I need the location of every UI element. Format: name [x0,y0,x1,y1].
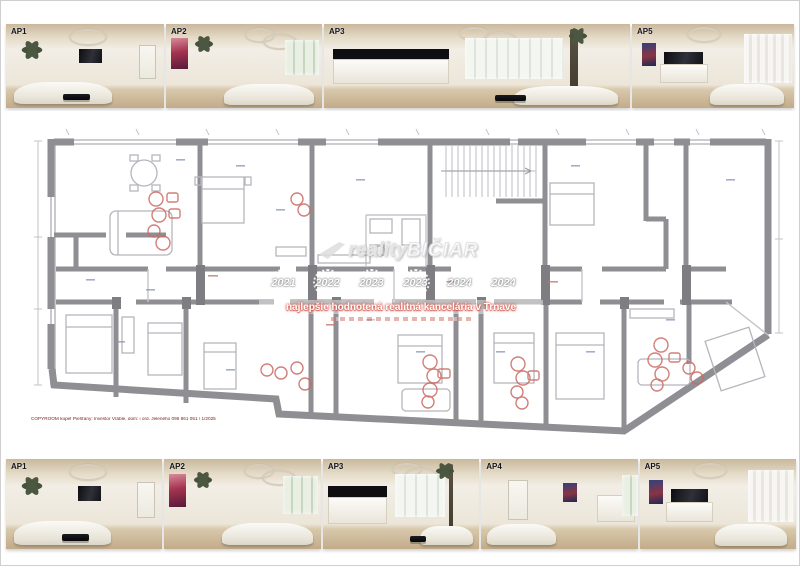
award-year: 2021 [271,277,295,289]
tv-decor [671,489,709,503]
sofa-decor [420,526,473,546]
art-decor [649,480,663,504]
photo-label: AP5 [637,27,653,36]
window-decor [465,38,563,78]
photo-label: AP2 [169,462,185,471]
award-year: 2023 [403,277,427,289]
ring-decor [69,464,107,481]
bottom-photo-strip: AP1AP2AP3AP4AP5 [6,459,796,549]
art-decor [171,38,188,68]
sofa-decor [710,84,785,105]
banner-text: najlepšie hodnotená realitná kancelária … [236,302,566,313]
apartment-photo-AP4: AP4 [481,459,637,549]
art-decor [563,483,577,502]
art-decor [642,43,657,66]
award-badges-row: 202120222023202320242024 [263,268,524,297]
sofa-decor [487,524,556,546]
window-decor [283,476,317,514]
sofa-decor [14,82,112,104]
tv-decor [664,52,703,65]
award-badge-2022: 2022 [307,268,348,297]
award-badge-2023: 2023 [395,268,436,297]
sofa-decor [715,524,787,547]
logo-text-prefix: reality [348,239,407,262]
sofa-decor [14,521,111,544]
door-decor [137,482,154,518]
strip-black-decor [328,486,387,497]
agency-logo: reality BIČIAR [319,239,478,262]
window-decor [744,34,793,83]
dimension-labels [86,159,735,371]
sofa-decor [224,84,314,105]
award-year: 2024 [491,277,515,289]
table-decor [62,534,89,541]
photo-label: AP1 [11,462,27,471]
photo-label: AP3 [328,462,344,471]
door-decor [508,480,528,521]
palm-decor [563,25,593,47]
apartment-photo-AP1: AP1 [6,459,162,549]
window-decor [748,470,795,522]
sofa-decor [222,523,313,546]
stairwell [441,145,536,197]
apartment-photo-AP2: AP2 [166,24,322,108]
art-decor [78,486,101,501]
window-decor [285,40,319,75]
table-decor [63,94,90,101]
ring-decor [693,463,727,479]
top-photo-strip: AP1AP2AP3AP5 [6,24,796,108]
photo-label: AP4 [486,462,502,471]
ring-decor [687,27,721,43]
palm-decor [189,32,219,56]
photo-label: AP5 [645,462,661,471]
apartment-photo-AP1: AP1 [6,24,164,108]
award-year: 2023 [359,277,383,289]
table-decor [410,536,426,542]
apartment-photo-AP5: AP5 [640,459,796,549]
plan-footer-note: COPYROOM kúpeľ Piešťany: Investor Vráble… [31,417,216,422]
palm-decor [15,473,49,499]
door-decor [139,45,156,79]
photo-label: AP3 [329,27,345,36]
ring-decor [69,29,107,46]
apartment-photo-AP5: AP5 [632,24,794,108]
palm-decor [188,468,218,492]
window-lines [51,139,770,385]
cab-decor [333,59,449,84]
apartment-photo-AP3: AP3 [323,459,479,549]
award-badge-2021: 2021 [263,268,304,297]
presentation-board: AP1AP2AP3AP5 [0,0,800,566]
window-decor [622,475,638,516]
logo-text-suffix: BIČIAR [407,240,478,262]
palm-decor [430,460,460,482]
floor-plan: reality BIČIAR 202120222023202320242024 … [1,111,800,456]
strip-black-decor [333,49,449,59]
apartment-photo-AP3: AP3 [324,24,630,108]
art-decor [169,474,186,506]
art-decor [79,49,103,63]
logo-swoosh-icon [319,242,345,259]
award-badge-2024: 2024 [439,268,480,297]
award-year: 2024 [447,277,471,289]
award-badge-2023: 2023 [351,268,392,297]
award-year: 2022 [315,277,339,289]
apartment-photo-AP2: AP2 [164,459,320,549]
cab-decor [660,64,709,82]
photo-label: AP2 [171,27,187,36]
award-badge-2024: 2024 [483,268,524,297]
cab-decor [328,497,387,524]
sofa-decor [514,86,618,104]
table-decor [495,95,526,101]
photo-label: AP1 [11,27,27,36]
palm-decor [15,37,49,63]
cab-decor [666,502,713,522]
banner-subtext [331,317,471,321]
